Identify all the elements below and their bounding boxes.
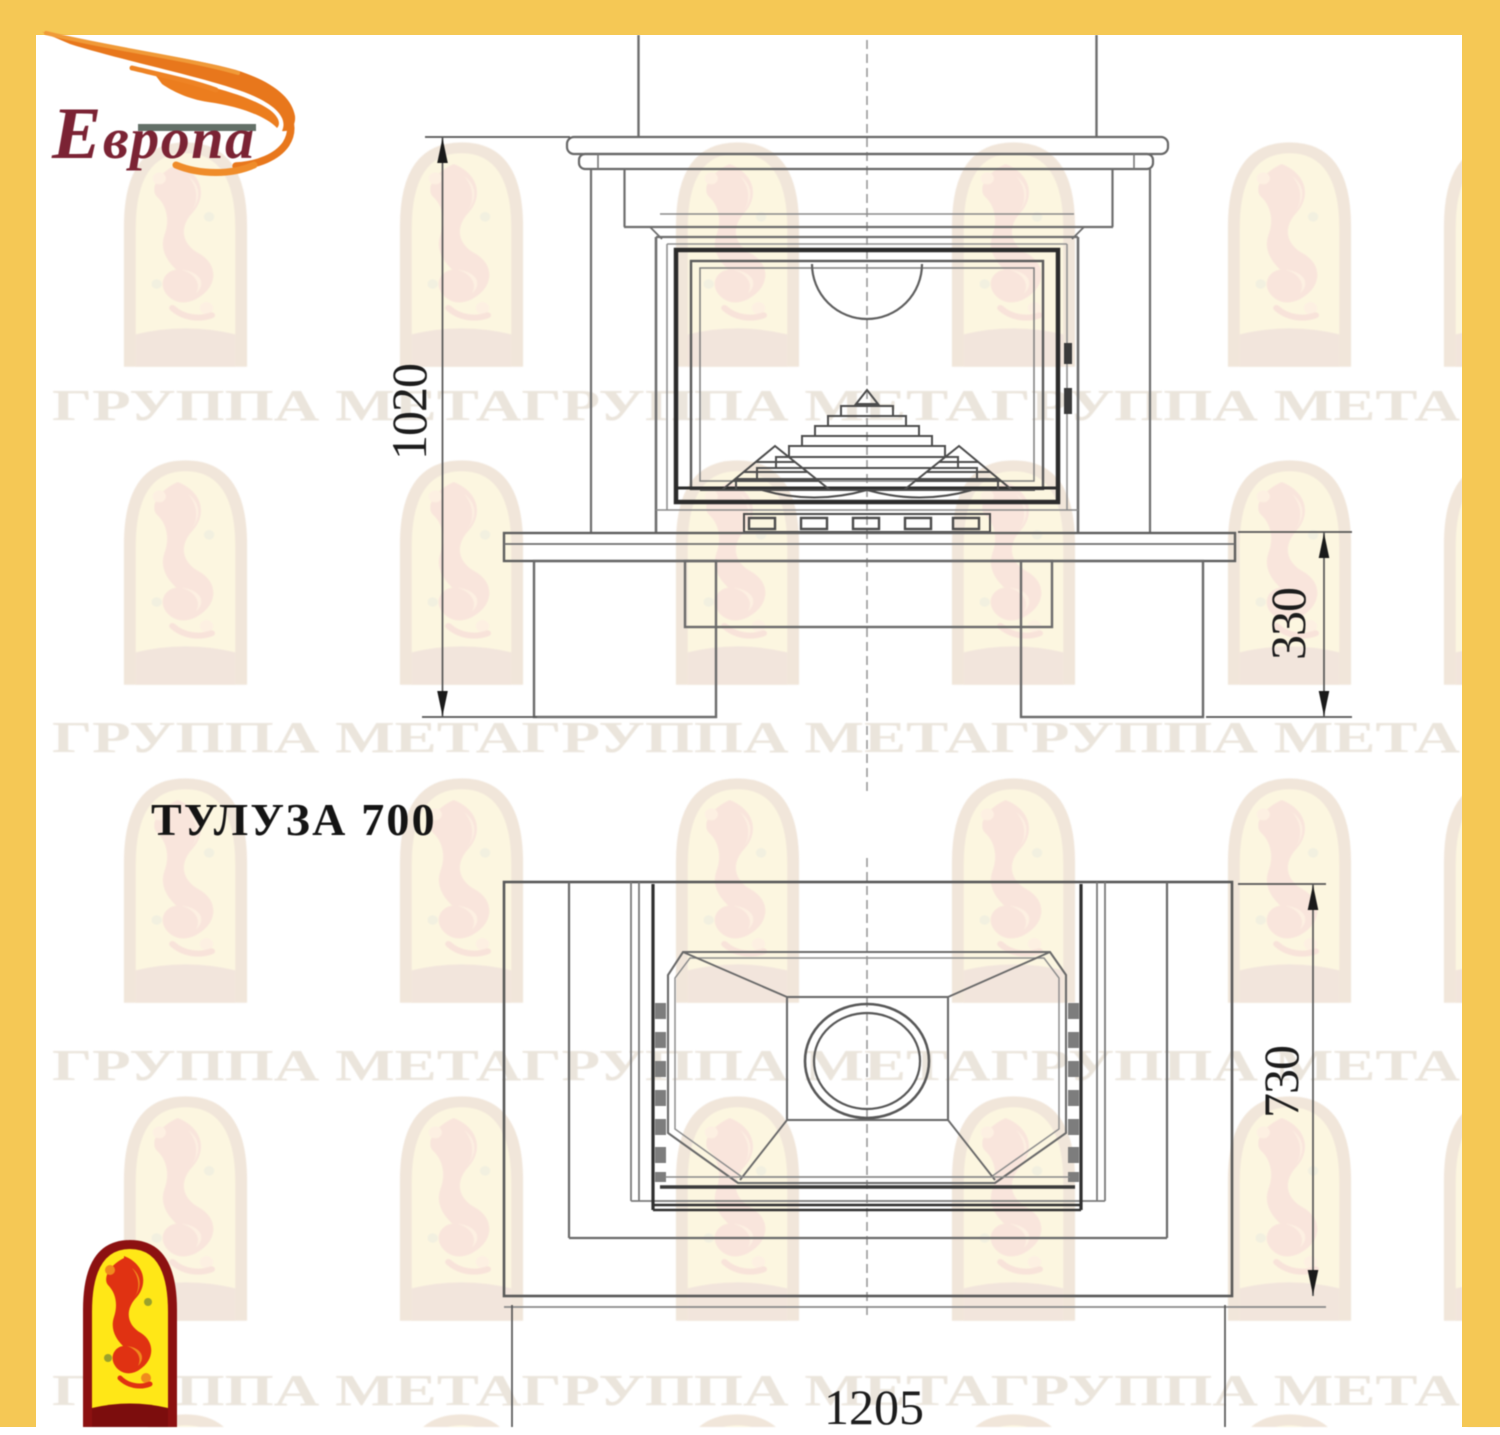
svg-text:Европа: Европа	[51, 93, 256, 175]
